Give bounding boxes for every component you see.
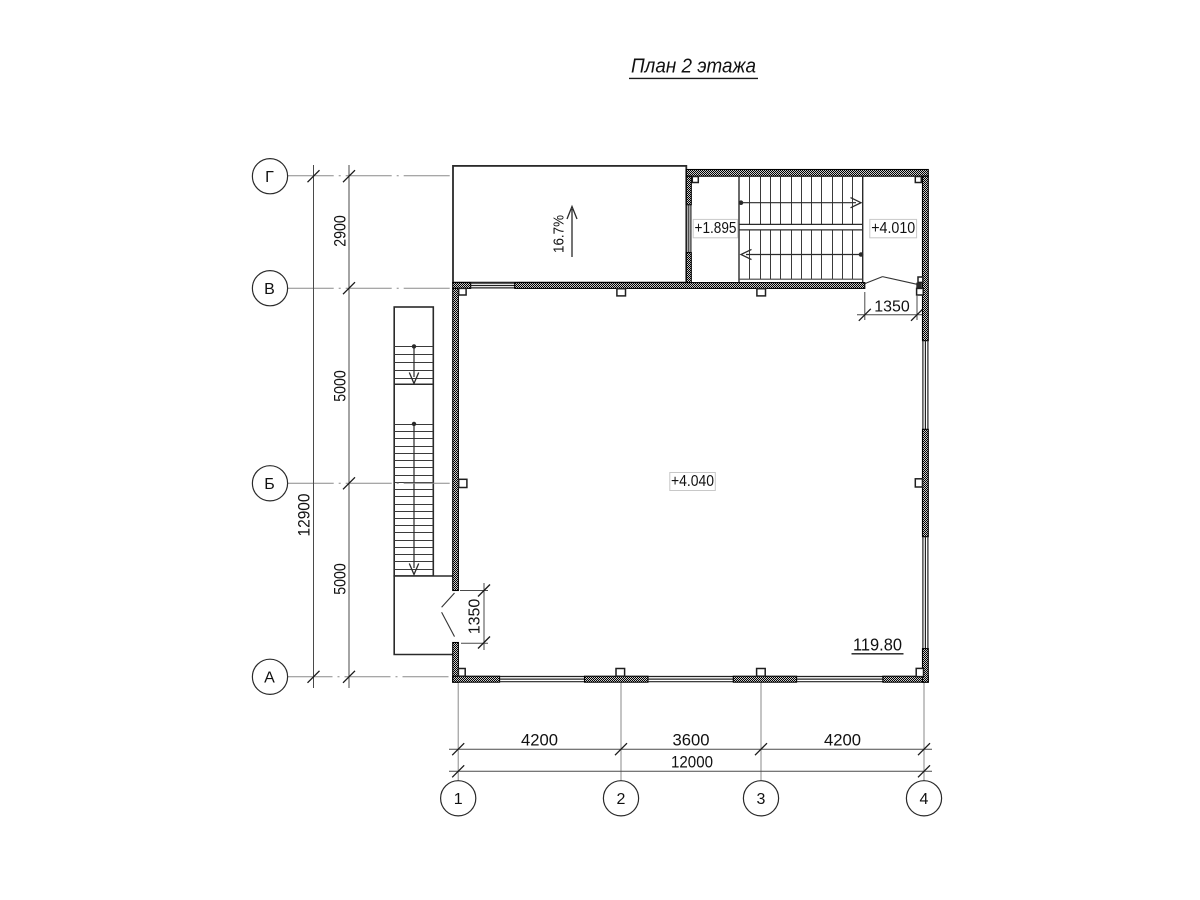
- svg-text:4200: 4200: [521, 732, 558, 750]
- svg-text:4: 4: [920, 791, 929, 808]
- svg-text:5000: 5000: [332, 563, 350, 595]
- svg-text:1350: 1350: [467, 599, 484, 635]
- svg-text:119.80: 119.80: [853, 635, 902, 655]
- svg-text:3: 3: [757, 791, 766, 808]
- svg-text:2: 2: [617, 791, 626, 808]
- svg-text:+4.040: +4.040: [671, 473, 714, 490]
- svg-text:5000: 5000: [332, 370, 350, 402]
- svg-text:Г: Г: [265, 169, 274, 186]
- svg-text:+1.895: +1.895: [695, 220, 737, 237]
- svg-text:3600: 3600: [673, 732, 710, 750]
- svg-text:12900: 12900: [296, 494, 314, 537]
- svg-text:План 2 этажа: План 2 этажа: [631, 55, 756, 78]
- svg-text:1: 1: [454, 791, 463, 808]
- svg-text:А: А: [264, 670, 275, 687]
- svg-text:1350: 1350: [874, 299, 910, 316]
- svg-text:В: В: [264, 281, 275, 298]
- svg-text:+4.010: +4.010: [871, 220, 915, 237]
- svg-text:4200: 4200: [824, 732, 861, 750]
- svg-text:Б: Б: [264, 476, 275, 493]
- svg-text:16.7%: 16.7%: [551, 215, 568, 253]
- svg-text:2900: 2900: [332, 215, 350, 247]
- svg-text:12000: 12000: [671, 754, 713, 772]
